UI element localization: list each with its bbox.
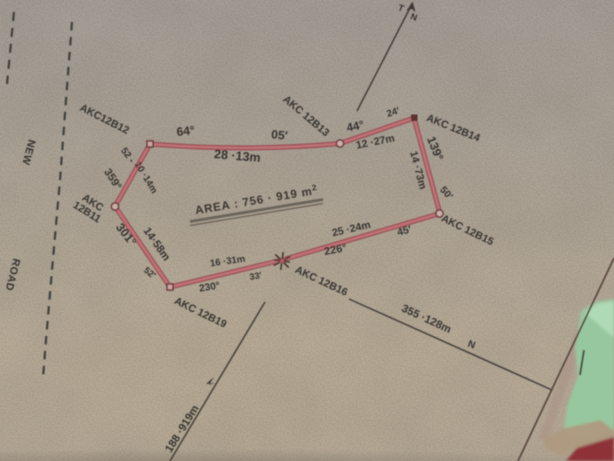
svg-text:33′: 33′ (249, 270, 263, 282)
svg-text:05′: 05′ (271, 127, 289, 143)
svg-text:64°: 64° (176, 123, 196, 139)
